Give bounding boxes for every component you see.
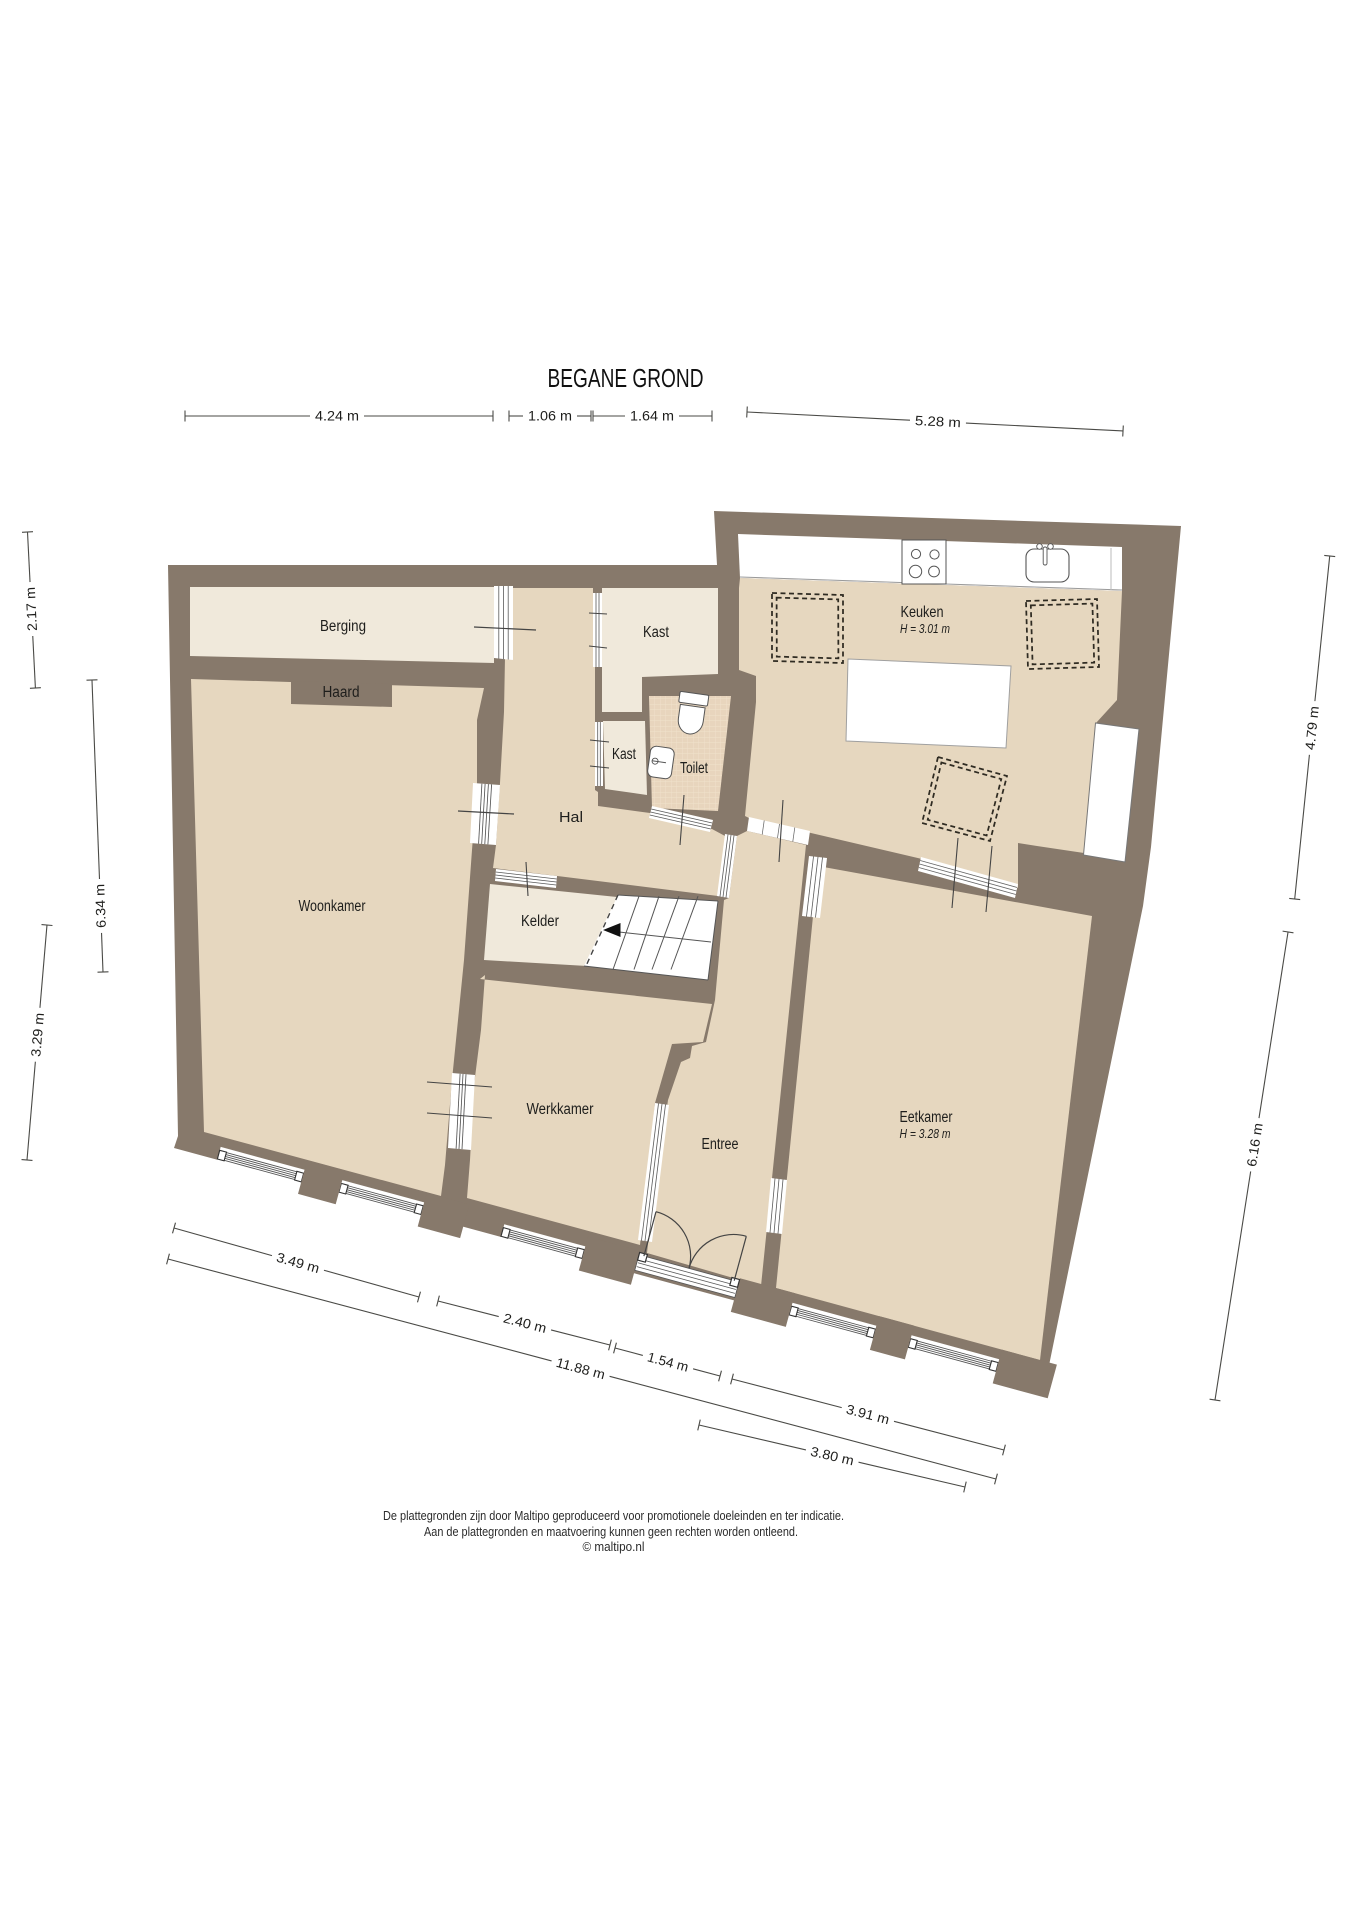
svg-text:Woonkamer: Woonkamer: [299, 898, 366, 915]
svg-text:Entree: Entree: [702, 1136, 739, 1153]
svg-text:Eetkamer: Eetkamer: [900, 1109, 953, 1126]
svg-text:De plattegronden zijn door Mal: De plattegronden zijn door Maltipo gepro…: [383, 1509, 844, 1523]
svg-text:Werkkamer: Werkkamer: [527, 1101, 594, 1118]
svg-text:H = 3.01 m: H = 3.01 m: [900, 622, 950, 636]
svg-text:BEGANE GROND: BEGANE GROND: [548, 363, 704, 393]
svg-text:2.17 m: 2.17 m: [23, 587, 40, 632]
svg-text:Haard: Haard: [323, 684, 360, 701]
svg-text:Kelder: Kelder: [521, 913, 559, 930]
svg-text:Toilet: Toilet: [680, 760, 709, 777]
svg-text:Kast: Kast: [612, 746, 637, 763]
svg-text:© maltipo.nl: © maltipo.nl: [583, 1540, 645, 1554]
svg-text:Berging: Berging: [320, 618, 366, 635]
svg-text:1.64 m: 1.64 m: [630, 409, 674, 424]
svg-text:Aan de plattegronden en maatvo: Aan de plattegronden en maatvoering kunn…: [424, 1525, 798, 1539]
svg-text:6.34 m: 6.34 m: [92, 884, 109, 929]
svg-text:4.24 m: 4.24 m: [315, 409, 359, 424]
svg-text:Kast: Kast: [643, 624, 670, 641]
svg-text:Keuken: Keuken: [901, 604, 944, 621]
svg-text:1.06 m: 1.06 m: [528, 409, 572, 424]
svg-text:H = 3.28 m: H = 3.28 m: [900, 1127, 951, 1141]
svg-text:Hal: Hal: [559, 810, 583, 826]
svg-text:5.28 m: 5.28 m: [915, 413, 962, 430]
